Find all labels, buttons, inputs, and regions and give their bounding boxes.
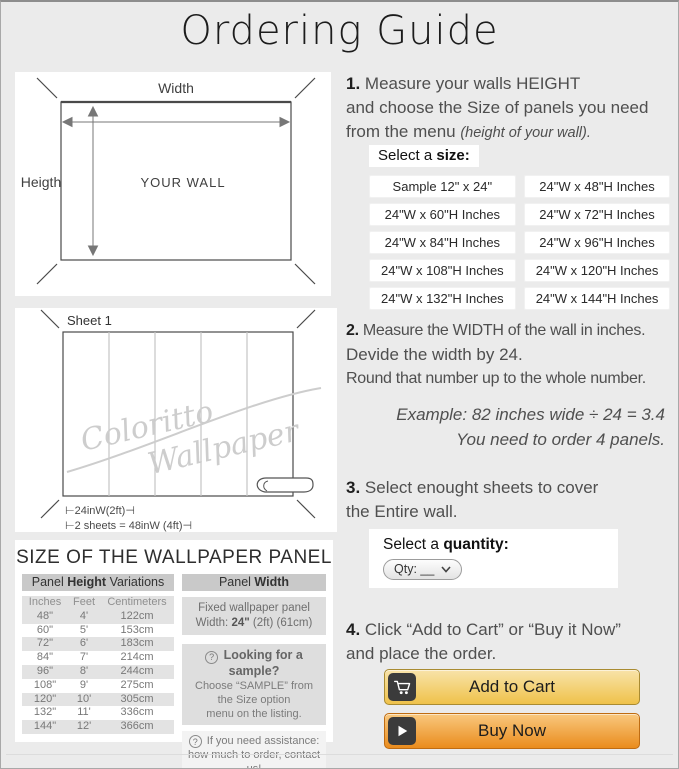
height-label: Heigth	[21, 174, 61, 190]
height-table: Inches Feet Centimeters 48"4'122cm 60"5'	[22, 596, 174, 734]
chevron-down-icon	[441, 566, 451, 573]
step-1-text: 1. Measure your walls HEIGHT and choose …	[346, 72, 679, 145]
panel-width-column: Panel Width Fixed wallpaper panel Width:…	[182, 574, 326, 769]
height-arrow	[89, 107, 98, 255]
assistance-note: ? If you need assistance: how much to or…	[182, 731, 326, 769]
panel-size-title: SIZE OF THE WALLPAPER PANEL	[15, 547, 333, 569]
height-variations-header: Panel Height Variations	[22, 574, 174, 591]
step-2-line3: Round that number up to the whole number…	[346, 367, 679, 391]
step-2-text: 2. Measure the WIDTH of the wall in inch…	[346, 319, 679, 391]
sheet-panels-diagram: Coloritto Wallpaper Sheet 1 ⊢24inW(2ft)⊣…	[15, 308, 337, 532]
step-1-line2: and choose the Size of panels you need	[346, 96, 679, 120]
fixed-width-note: Fixed wallpaper panel Width: 24" (2ft) (…	[182, 597, 326, 635]
step-3-text: 3. Select enought sheets to cover the En…	[346, 476, 679, 524]
step-3-line1: 3. Select enought sheets to cover	[346, 476, 679, 500]
size-options-grid: Sample 12" x 24" 24"W x 48"H Inches 24"W…	[369, 175, 670, 310]
quantity-dropdown[interactable]: Qty: __	[383, 559, 462, 580]
size-option-button[interactable]: 24"W x 48"H Inches	[524, 175, 671, 198]
page-title: Ordering Guide	[1, 8, 678, 54]
width-label: Width	[158, 80, 194, 96]
step-1-line3: from the menu (height of your wall).	[346, 120, 679, 145]
height-table-row: 48"4'122cm	[22, 610, 174, 624]
wall-diagram-svg: Width Heigth YOUR WALL	[15, 72, 331, 296]
two-sheets-dim: ⊢2 sheets = 48inW (4ft)⊣	[65, 520, 192, 532]
width-arrow	[63, 118, 289, 127]
your-wall-label: YOUR WALL	[140, 175, 225, 190]
sample-note: ? Looking for a sample? Choose “SAMPLE” …	[182, 644, 326, 725]
example-text: Example: 82 inches wide ÷ 24 = 3.4 You n…	[357, 402, 665, 452]
size-option-button[interactable]: 24"W x 144"H Inches	[524, 287, 671, 310]
size-option-button[interactable]: 24"W x 108"H Inches	[369, 259, 516, 282]
height-table-row: 72"6'183cm	[22, 637, 174, 651]
add-to-cart-label: Add to Cart	[385, 677, 639, 697]
size-option-button[interactable]: 24"W x 132"H Inches	[369, 287, 516, 310]
size-option-button[interactable]: 24"W x 84"H Inches	[369, 231, 516, 254]
panel-width-dim: ⊢24inW(2ft)⊣	[65, 505, 135, 517]
add-to-cart-button[interactable]: Add to Cart	[384, 669, 640, 705]
step-4-line1: 4. Click “Add to Cart” or “Buy it Now”	[346, 618, 679, 642]
buy-now-label: Buy Now	[385, 721, 639, 741]
step-1-line1: 1. Measure your walls HEIGHT	[346, 72, 679, 96]
paper-curl-icon	[257, 478, 313, 492]
buy-now-button[interactable]: Buy Now	[384, 713, 640, 749]
panel-size-section: SIZE OF THE WALLPAPER PANEL Panel Height…	[15, 540, 333, 742]
size-option-button[interactable]: Sample 12" x 24"	[369, 175, 516, 198]
size-option-button[interactable]: 24"W x 60"H Inches	[369, 203, 516, 226]
bottom-divider	[6, 754, 673, 755]
height-table-row: 108"9'275cm	[22, 679, 174, 693]
height-table-row: 60"5'153cm	[22, 624, 174, 638]
step-3-line2: the Entire wall.	[346, 500, 679, 524]
size-option-button[interactable]: 24"W x 96"H Inches	[524, 231, 671, 254]
size-option-button[interactable]: 24"W x 72"H Inches	[524, 203, 671, 226]
sheet-label: Sheet 1	[67, 313, 112, 328]
question-icon: ?	[205, 651, 218, 664]
step-2-line1: 2. Measure the WIDTH of the wall in inch…	[346, 319, 679, 343]
height-table-row: 144"12'366cm	[22, 720, 174, 734]
select-quantity-label: Select a quantity:	[369, 529, 618, 554]
height-table-row: 84"7'214cm	[22, 651, 174, 665]
wall-measure-diagram: Width Heigth YOUR WALL	[15, 72, 331, 296]
sheet-diagram-svg: Coloritto Wallpaper Sheet 1 ⊢24inW(2ft)⊣…	[15, 308, 337, 532]
select-size-label: Select a size:	[369, 145, 479, 167]
question-icon: ?	[189, 735, 202, 748]
size-option-button[interactable]: 24"W x 120"H Inches	[524, 259, 671, 282]
height-table-row: 120"10'305cm	[22, 693, 174, 707]
quantity-box: Select a quantity: Qty: __	[369, 529, 618, 588]
step-4-text: 4. Click “Add to Cart” or “Buy it Now” a…	[346, 618, 679, 666]
ordering-guide-page: Ordering Guide Width Heigt	[0, 0, 679, 769]
height-table-header-row: Inches Feet Centimeters	[22, 596, 174, 610]
height-variations-column: Panel Height Variations Inches Feet Cent…	[22, 574, 174, 769]
step-2-line2: Devide the width by 24.	[346, 343, 679, 367]
panel-width-header: Panel Width	[182, 574, 326, 591]
height-table-row: 96"8'244cm	[22, 665, 174, 679]
height-table-row: 132"11'336cm	[22, 706, 174, 720]
step-4-line2: and place the order.	[346, 642, 679, 666]
